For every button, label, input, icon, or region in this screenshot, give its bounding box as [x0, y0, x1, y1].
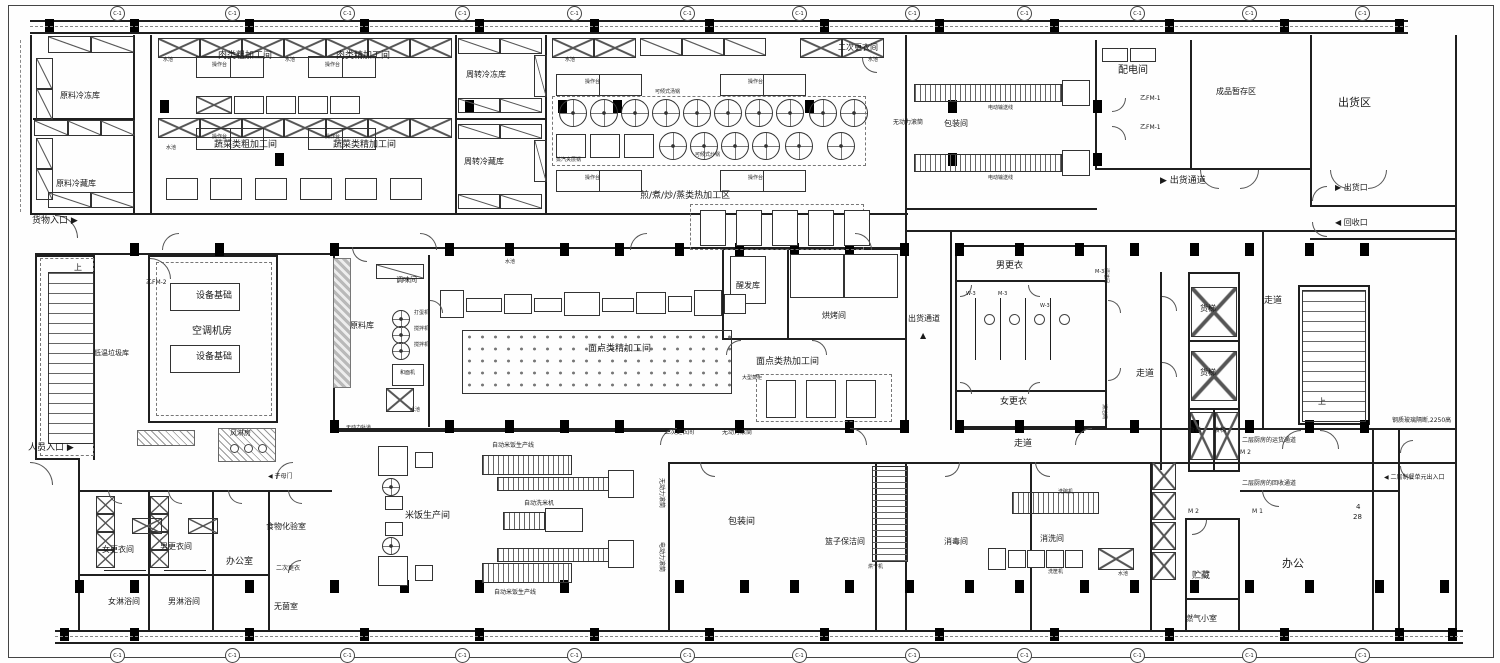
structural-column	[1245, 420, 1254, 433]
equipment-wc	[984, 314, 995, 325]
room-label: 男更衣间	[160, 543, 192, 551]
structural-column	[445, 420, 454, 433]
structural-column	[1093, 153, 1102, 166]
equipment-rack	[640, 38, 682, 56]
room-label: 成品暂存区	[1216, 88, 1256, 96]
structural-column	[1080, 580, 1089, 593]
room-label: 无动力滚筒	[722, 430, 752, 436]
equipment-wc	[1009, 314, 1020, 325]
room-label: 煎/煮/炒/蒸类热加工区	[640, 192, 730, 201]
grid-bubble: C-1	[1242, 6, 1257, 21]
equipment-rack	[499, 124, 542, 139]
room-label: 4	[1356, 504, 1360, 511]
equipment-box	[608, 540, 634, 568]
equipment-rack	[499, 38, 542, 54]
equipment-wok	[652, 99, 680, 127]
equipment-xt	[800, 38, 842, 58]
equipment-box	[298, 96, 328, 114]
room-label: 货梯	[1200, 305, 1216, 313]
structural-column	[1130, 420, 1139, 433]
dashed-centerline	[55, 636, 1463, 637]
equipment-wok	[840, 99, 868, 127]
room-label: 周转冷冻库	[466, 71, 506, 79]
equipment-wok	[827, 132, 855, 160]
equipment-box	[602, 298, 634, 312]
equipment-box	[534, 298, 562, 312]
equipment-box	[504, 294, 532, 314]
room-label: 食梯	[1189, 428, 1201, 434]
equipment-wok	[683, 99, 711, 127]
room-label: 蔬菜类精加工间	[333, 141, 396, 150]
equipment-box	[790, 254, 844, 298]
equipment-xt	[150, 550, 169, 568]
structural-column	[245, 628, 254, 641]
structural-column	[1440, 580, 1449, 593]
room-label: 面点类精加工间	[588, 345, 651, 354]
wall-segment	[950, 230, 952, 430]
grid-bubble: C-1	[1017, 648, 1032, 663]
equipment-box	[385, 496, 403, 510]
room-label: 走道	[1264, 297, 1282, 306]
equipment-wok	[714, 99, 742, 127]
room-label: 风淋房	[230, 430, 251, 437]
equipment-rack	[458, 98, 501, 113]
wall-segment	[30, 20, 1408, 22]
equipment-belt	[497, 548, 609, 562]
equipment-beltv	[872, 466, 908, 562]
wall-segment	[55, 630, 1463, 632]
equipment-rack	[458, 124, 501, 139]
equipment-wok	[721, 132, 749, 160]
wall-segment	[1372, 430, 1374, 630]
structural-column	[590, 628, 599, 641]
structural-column	[330, 420, 339, 433]
wall-segment	[55, 642, 1463, 644]
room-label: 包装间	[728, 518, 755, 527]
room-label: 清洁间	[1103, 268, 1108, 283]
equipment-belt	[914, 84, 1062, 102]
wall-segment	[1262, 230, 1264, 428]
room-label: M-3	[998, 292, 1007, 297]
equipment-box	[1102, 48, 1128, 62]
room-label: 二层厨房的运货通道	[1242, 438, 1296, 444]
wall-segment	[957, 280, 1105, 282]
wall-segment	[1185, 598, 1240, 600]
structural-column	[740, 580, 749, 593]
wall-segment	[905, 208, 1097, 210]
room-label: 女更衣	[1000, 398, 1027, 407]
room-label: 原料冷冻库	[60, 92, 100, 100]
wall-segment	[1050, 298, 1051, 360]
wall-segment	[78, 458, 80, 632]
room-label: 操作台	[748, 80, 763, 85]
equipment-wc	[230, 444, 239, 453]
room-label: 办公	[1282, 558, 1304, 570]
equipment-xt	[1098, 548, 1134, 570]
equipment-rack	[48, 192, 92, 208]
structural-column	[445, 243, 454, 256]
structural-column	[1305, 580, 1314, 593]
equipment-box	[1027, 550, 1045, 568]
structural-column	[1190, 580, 1199, 593]
equipment-xt	[410, 38, 452, 58]
room-label: 出货通道	[908, 315, 940, 323]
room-label: 自动米饭生产线	[492, 443, 534, 449]
equipment-stairs	[1302, 290, 1366, 422]
room-label: 货梯	[1200, 369, 1216, 377]
equipment-box	[255, 178, 287, 200]
room-label: ◀ 二层制餐单元出入口	[1384, 475, 1445, 481]
room-label: 低温垃圾库	[94, 350, 129, 357]
structural-column	[505, 243, 514, 256]
wall-segment	[1188, 470, 1240, 472]
structural-column	[955, 243, 964, 256]
equipment-box	[378, 446, 408, 476]
grid-bubble: C-1	[1130, 648, 1145, 663]
equipment-box	[736, 210, 762, 246]
room-label: 消洗间	[1040, 535, 1064, 543]
equipment-box	[390, 178, 422, 200]
grid-bubble: C-1	[225, 6, 240, 21]
equipment-wok	[659, 132, 687, 160]
dashed-centerline	[30, 26, 1408, 27]
room-label: 水池	[565, 58, 575, 63]
room-label: 大型蒸柜	[742, 376, 762, 381]
structural-column	[1280, 628, 1289, 641]
equipment-wok	[785, 132, 813, 160]
grid-bubble: C-1	[680, 648, 695, 663]
equipment-box	[330, 96, 360, 114]
room-label: 肉类粗加工间	[218, 52, 272, 61]
equipment-xt	[1152, 552, 1176, 580]
grid-bubble: C-1	[1242, 648, 1257, 663]
equipment-wc	[244, 444, 253, 453]
wall-segment	[268, 490, 270, 630]
wall-segment	[1398, 430, 1400, 630]
structural-column	[615, 243, 624, 256]
structural-column	[1245, 243, 1254, 256]
grid-bubble: C-1	[340, 6, 355, 21]
structural-column	[1015, 420, 1024, 433]
structural-column	[330, 243, 339, 256]
equipment-xt	[188, 518, 218, 534]
equipment-rack	[100, 120, 135, 136]
wall-segment	[1455, 35, 1457, 632]
equipment-rack	[90, 192, 134, 208]
equipment-xt	[1190, 412, 1214, 460]
structural-column	[560, 243, 569, 256]
equipment-rack	[534, 55, 547, 97]
equipment-box	[1062, 80, 1090, 106]
room-label: 蔬菜类粗加工间	[214, 141, 277, 150]
grid-bubble: C-1	[792, 648, 807, 663]
equipment-box	[300, 178, 332, 200]
equipment-belt	[482, 563, 572, 583]
room-label: 配电间	[1118, 66, 1148, 77]
wall-segment	[35, 255, 37, 460]
grid-bubble: C-1	[567, 6, 582, 21]
wall-segment	[30, 32, 1408, 34]
equipment-xt	[196, 96, 232, 114]
equipment-wok	[745, 99, 773, 127]
room-label: 出货区	[1338, 97, 1371, 109]
wall-segment	[35, 255, 95, 257]
room-label: 包装间	[944, 120, 968, 128]
room-label: 搅拌机	[414, 343, 429, 348]
wall-segment	[148, 421, 278, 423]
wall-segment	[428, 255, 430, 427]
equipment-wok	[809, 99, 837, 127]
wall-segment	[276, 255, 278, 423]
room-label: 电动力滚筒	[658, 542, 664, 572]
structural-column	[1360, 243, 1369, 256]
equipment-belt	[914, 154, 1062, 172]
grid-bubble: C-1	[1355, 648, 1370, 663]
room-label: 水池	[166, 146, 176, 151]
equipment-wok	[382, 478, 400, 496]
equipment-box	[844, 254, 898, 298]
equipment-box	[378, 556, 408, 586]
structural-column	[275, 153, 284, 166]
structural-column	[965, 580, 974, 593]
equipment-wok	[392, 342, 410, 360]
room-label: 二层厨房的回收通道	[1242, 481, 1296, 487]
equipment-xt	[132, 518, 162, 534]
equipment-box	[700, 210, 726, 246]
equipment-box	[636, 292, 666, 314]
equipment-box	[440, 290, 464, 318]
wall-segment	[1190, 40, 1192, 168]
structural-column	[905, 580, 914, 593]
room-label: W-3	[966, 292, 976, 297]
equipment-box	[415, 452, 433, 468]
equipment-xt	[1152, 522, 1176, 550]
equipment-box	[608, 470, 634, 498]
equipment-box	[234, 96, 264, 114]
structural-column	[1190, 243, 1199, 256]
room-label: 原料冷藏库	[56, 180, 96, 188]
structural-column	[1050, 628, 1059, 641]
wall-segment	[668, 462, 670, 630]
room-label: 设备基础	[196, 292, 232, 301]
room-label: 醒发库	[736, 282, 760, 290]
structural-column	[215, 243, 224, 256]
equipment-box	[1062, 150, 1090, 176]
wall-segment	[455, 35, 457, 213]
room-label: M 1	[1252, 509, 1263, 515]
room-label: 办公室	[226, 558, 253, 567]
room-label: 上	[74, 264, 82, 272]
room-label: 走道	[1136, 370, 1154, 379]
grid-bubble: C-1	[1017, 6, 1032, 21]
equipment-xt	[594, 38, 636, 58]
room-label: 水池	[868, 58, 878, 63]
equipment-box	[806, 380, 836, 418]
grid-bubble: C-1	[110, 6, 125, 21]
equipment-wc	[258, 444, 267, 453]
equipment-xt	[1152, 492, 1176, 520]
grid-bubble: C-1	[225, 648, 240, 663]
equipment-rack	[36, 88, 53, 120]
structural-column	[560, 420, 569, 433]
room-label: 乙FM-1	[1140, 125, 1161, 131]
wall-segment	[212, 490, 214, 630]
room-label: ◀ 子母门	[268, 474, 293, 480]
wall-segment	[104, 570, 146, 571]
equipment-box	[210, 178, 242, 200]
equipment-grid	[462, 330, 732, 394]
wall-segment	[1298, 285, 1300, 425]
room-label: 电动输送线	[988, 176, 1013, 181]
equipment-rack	[724, 38, 766, 56]
room-label: ▲	[920, 332, 926, 340]
equipment-box	[766, 380, 796, 418]
structural-column	[60, 628, 69, 641]
room-label: ▶ 出货通道	[1160, 177, 1206, 186]
equipment-rack	[499, 194, 542, 209]
equipment-belt	[482, 455, 572, 475]
room-label: 二次更衣间	[838, 44, 878, 52]
wall-segment	[1025, 298, 1026, 360]
room-label: 上	[1318, 398, 1326, 406]
equipment-box	[590, 134, 620, 158]
equipment-rack	[458, 194, 501, 209]
equipment-xt	[410, 118, 452, 138]
grid-bubble: C-1	[455, 6, 470, 21]
equipment-wok	[382, 537, 400, 555]
room-label: 乙FM-1	[1140, 96, 1161, 102]
equipment-box	[466, 298, 502, 312]
wall-segment	[787, 248, 789, 340]
structural-column	[245, 580, 254, 593]
room-label: 操作台	[325, 63, 340, 68]
equipment-box	[724, 294, 746, 314]
wall-segment	[455, 118, 545, 120]
structural-column	[130, 243, 139, 256]
grid-bubble: C-1	[905, 6, 920, 21]
structural-column	[675, 580, 684, 593]
equipment-box	[1065, 550, 1083, 568]
structural-column	[820, 628, 829, 641]
wall-segment	[164, 570, 206, 571]
room-label: 操作台	[325, 135, 340, 140]
room-label: 米饭生产间	[405, 512, 450, 521]
room-label: ◀ 回收口	[1335, 219, 1368, 227]
room-label: 无菌室	[274, 603, 298, 611]
room-label: 水池	[285, 58, 295, 63]
room-label: 篮子保洁间	[825, 538, 865, 546]
grid-bubble: C-1	[680, 6, 695, 21]
room-label: 打蛋机	[414, 311, 429, 316]
equipment-xt	[1215, 412, 1239, 460]
structural-column	[75, 580, 84, 593]
equipment-belt	[1012, 492, 1099, 514]
room-label: 水池	[1118, 572, 1128, 577]
equipment-rack	[534, 140, 547, 182]
wall-segment	[955, 245, 1107, 247]
grid-bubble: C-1	[905, 648, 920, 663]
room-label: 无动力滚筒	[658, 478, 664, 508]
room-label: 洗筐机	[1048, 570, 1063, 575]
room-label: 自动米饭生产线	[494, 590, 536, 596]
equipment-rack	[499, 98, 542, 113]
structural-column	[1245, 580, 1254, 593]
equipment-stairs	[48, 272, 94, 444]
wall-segment	[30, 35, 32, 215]
wall-segment	[1298, 285, 1368, 287]
equipment-box	[1130, 48, 1156, 62]
room-label: 蒸汽夹层锅	[556, 158, 581, 163]
structural-column	[675, 243, 684, 256]
equipment-box	[345, 178, 377, 200]
equipment-xt	[1152, 462, 1176, 490]
wall-segment	[1310, 238, 1455, 240]
wall-segment	[1368, 285, 1370, 425]
room-label: 二次更衣	[276, 566, 300, 572]
equipment-box	[624, 134, 654, 158]
structural-column	[900, 243, 909, 256]
equipment-box	[556, 134, 586, 158]
structural-column	[505, 420, 514, 433]
room-label: 操作台	[212, 135, 227, 140]
room-label: 男更衣	[996, 262, 1023, 271]
structural-column	[475, 628, 484, 641]
room-label: 可倾式炒锅	[695, 153, 720, 158]
room-label: W-3	[1040, 304, 1050, 309]
structural-column	[705, 628, 714, 641]
equipment-rack	[67, 120, 102, 136]
room-label: 走道	[1014, 440, 1032, 449]
room-label: 无动力轨道	[346, 426, 371, 431]
wall-segment	[150, 35, 152, 213]
wall-segment	[668, 462, 1457, 464]
structural-column	[935, 628, 944, 641]
equipment-box	[988, 548, 1006, 570]
equipment-box	[415, 565, 433, 581]
structural-column	[1305, 243, 1314, 256]
equipment-wok	[559, 99, 587, 127]
equipment-rack	[48, 36, 92, 53]
room-label: 操作台	[748, 176, 763, 181]
structural-column	[160, 100, 169, 113]
room-label: 食物化验室	[266, 523, 306, 531]
equipment-wc	[1034, 314, 1045, 325]
wall-segment	[80, 574, 270, 576]
wall-segment	[148, 255, 278, 257]
structural-column	[1165, 628, 1174, 641]
room-label: 操作台	[585, 176, 600, 181]
room-label: 设备基础	[196, 353, 232, 362]
grid-bubble: C-1	[1355, 6, 1370, 21]
room-label: 燃气小室	[1185, 615, 1217, 623]
equipment-wok	[621, 99, 649, 127]
wall-segment	[1310, 35, 1312, 207]
wall-segment	[1188, 340, 1240, 342]
room-label: 贮藏	[1192, 572, 1210, 581]
wall-segment	[1000, 298, 1001, 360]
equipment-rack	[682, 38, 724, 56]
structural-column	[130, 580, 139, 593]
equipment-box	[1046, 550, 1064, 568]
equipment-rack	[36, 58, 53, 90]
room-label: 烘干机	[868, 565, 883, 570]
equipment-belt	[503, 512, 545, 530]
room-label: 食梯	[1214, 428, 1226, 434]
room-label: 电动输送线	[988, 106, 1013, 111]
structural-column	[1395, 628, 1404, 641]
structural-column	[130, 628, 139, 641]
equipment-xt	[96, 514, 115, 532]
